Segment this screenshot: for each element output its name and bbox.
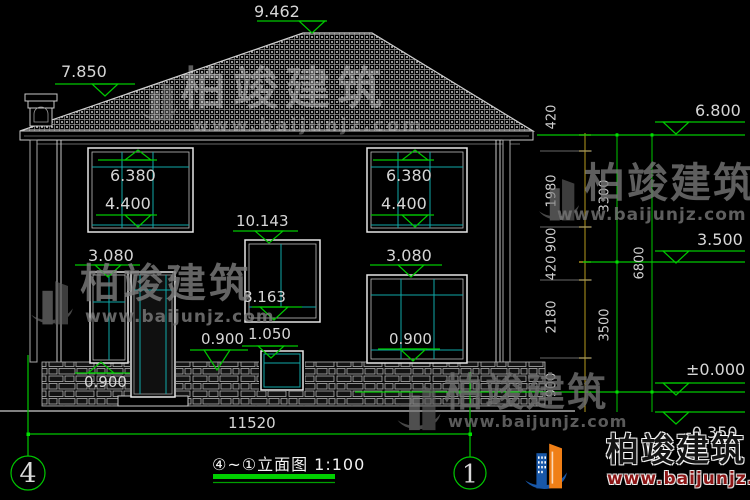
overall-width-label: 11520 xyxy=(228,416,276,431)
porch-level-label: 0.900 xyxy=(201,332,244,347)
chain-dim-900a: 900 xyxy=(546,228,559,253)
upper-left-window-bottom-label: 4.400 xyxy=(105,196,151,212)
watermark-url-bottom: www.baijunjz.com xyxy=(448,414,627,430)
chain-dim-6800: 6800 xyxy=(634,246,647,279)
brand-logo-icon xyxy=(394,374,444,440)
watermark-url-corner: www.baijunjz.com xyxy=(607,471,750,488)
ridge-elevation-label: 9.462 xyxy=(254,4,300,20)
brand-logo-icon xyxy=(138,70,180,132)
watermark-brand-right: 柏竣建筑 xyxy=(584,163,750,204)
upper-left-window-top-label: 6.380 xyxy=(110,168,156,184)
lower-right-window xyxy=(367,275,467,363)
axis-bubble-4: 4 xyxy=(19,459,36,490)
base-level-label: 0.900 xyxy=(84,375,127,390)
lower-right-bottom-label: 0.900 xyxy=(389,332,432,347)
elevation-drawing: 9.462 7.850 6.380 4.400 6.380 4.400 10.1… xyxy=(0,0,750,500)
watermark-brand-bottom: 柏竣建筑 xyxy=(444,374,608,413)
lower-right-top-label: 3.080 xyxy=(386,248,432,264)
brand-logo-color-icon xyxy=(514,434,578,498)
small-center-window xyxy=(261,351,303,390)
drawing-title: ④~①立面图 1:100 xyxy=(212,451,365,475)
chimney-elevation-label: 7.850 xyxy=(61,64,107,80)
watermark-brand-roof: 柏竣建筑 xyxy=(181,66,389,111)
title-underline xyxy=(213,474,335,483)
axis-bubble-1: 1 xyxy=(462,460,478,489)
upper-right-window-top-label: 6.380 xyxy=(386,168,432,184)
chain-dim-3500: 3500 xyxy=(599,308,612,341)
brand-logo-icon xyxy=(28,270,76,334)
eave-elevation-label: 6.800 xyxy=(695,103,741,119)
chimney xyxy=(25,94,57,126)
watermark-brand-left: 柏竣建筑 xyxy=(80,264,252,304)
stair-window-top-label: 10.143 xyxy=(236,214,289,229)
mid-elevation-label: 3.500 xyxy=(697,232,743,248)
ground-elevation-label: ±0.000 xyxy=(686,362,745,378)
upper-right-window-bottom-label: 4.400 xyxy=(381,196,427,212)
chain-dim-2180: 2180 xyxy=(546,300,559,333)
watermark-url-left: www.baijunjz.com xyxy=(85,309,275,326)
center-small-window-label: 1.050 xyxy=(248,327,291,342)
chain-dim-420a: 420 xyxy=(546,105,559,130)
watermark-url-roof: www.baijunjz.com xyxy=(192,117,424,135)
watermark-brand-corner: 柏竣建筑 xyxy=(606,433,746,466)
chain-dim-420b: 420 xyxy=(546,256,559,281)
watermark-url-right: www.baijunjz.com xyxy=(557,207,747,224)
